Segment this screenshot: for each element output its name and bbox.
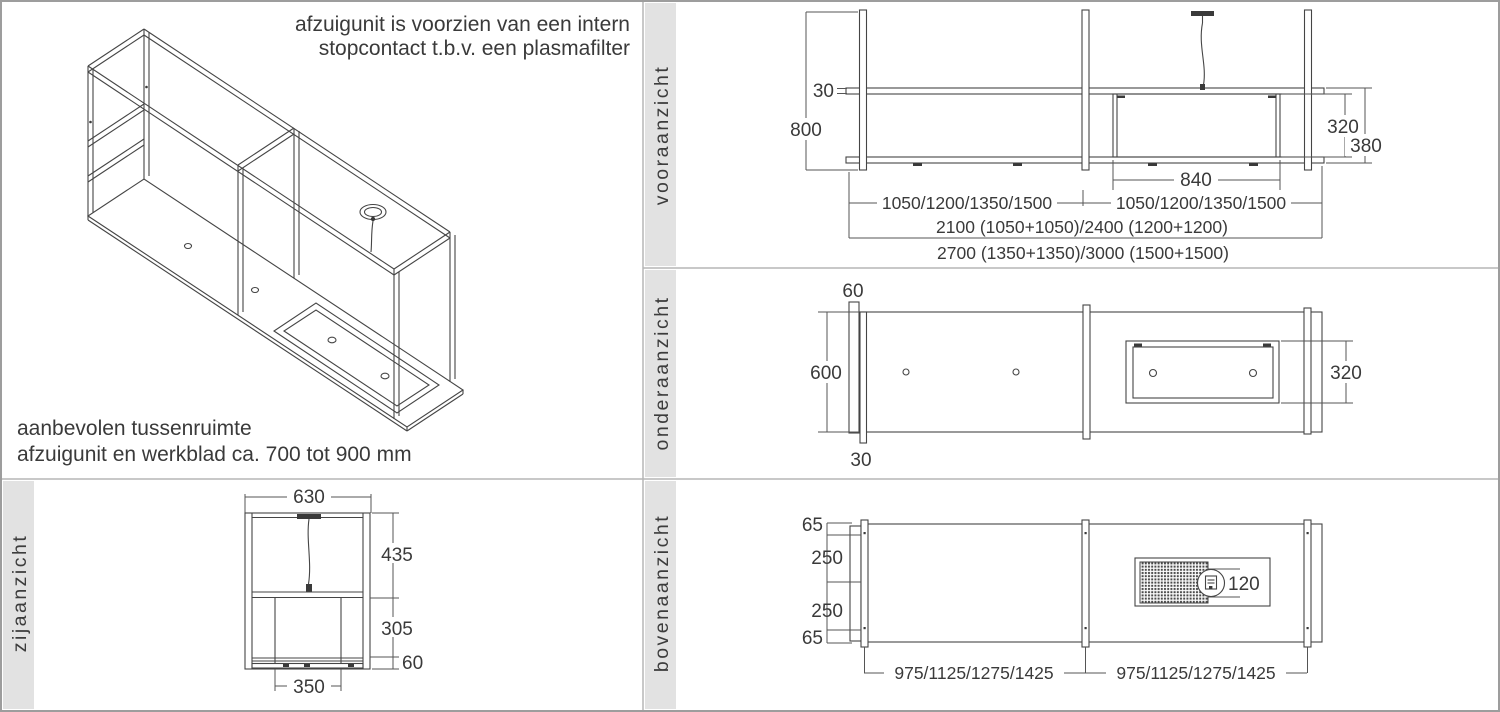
panel-dividers [2,2,1498,710]
iso-hint-line2: afzuigunit en werkblad ca. 700 tot 900 m… [17,443,412,466]
side-dim-350: 350 [293,677,325,698]
front-row2: 2100 (1050+1050)/2400 (1200+1200) [936,217,1228,237]
iso-note-line1: afzuigunit is voorzien van een intern [295,13,630,36]
top-row-left: 975/1125/1275/1425 [894,663,1053,683]
side-dim-305: 305 [381,619,413,640]
technical-drawing-sheet: vooraanzicht onderaanzicht bovenaanzicht… [0,0,1500,712]
label-bovenaanzicht: bovenaanzicht [651,514,673,672]
top-dim-65-bottom: 65 [802,628,823,649]
front-view: 30 800 840 320 380 1050/1200/1350/1500 1… [786,10,1387,263]
bottom-view: 60 30 600 320 [805,281,1367,471]
front-dim-30: 30 [813,81,834,102]
iso-hint-line1: aanbevolen tussenruimte [17,417,252,440]
label-vooraanzicht: vooraanzicht [651,65,673,206]
front-dim-380: 380 [1350,136,1382,157]
top-dim-120: 120 [1228,574,1260,595]
iso-note-line2: stopcontact t.b.v. een plasmafilter [319,37,630,60]
side-dim-630: 630 [293,487,325,508]
front-row1-left: 1050/1200/1350/1500 [882,193,1053,213]
under-dim-320: 320 [1330,363,1362,384]
under-dim-600: 600 [810,363,842,384]
top-dim-250-lower: 250 [811,601,843,622]
under-dim-30: 30 [850,450,871,471]
side-dim-435: 435 [381,545,413,566]
top-dim-250-upper: 250 [811,548,843,569]
top-row-right: 975/1125/1275/1425 [1116,663,1275,683]
isometric-view: afzuigunit is voorzien van een intern st… [17,13,630,466]
front-row3: 2700 (1350+1350)/3000 (1500+1500) [937,243,1229,263]
front-dim-840: 840 [1180,170,1212,191]
top-dim-65-top: 65 [802,515,823,536]
front-row1-right: 1050/1200/1350/1500 [1116,193,1287,213]
side-view: 630 435 305 60 [245,487,423,698]
side-dim-60: 60 [402,653,423,674]
under-dim-60: 60 [842,281,863,302]
front-dim-800: 800 [790,120,822,141]
label-onderaanzicht: onderaanzicht [651,295,673,450]
label-zijaanzicht: zijaanzicht [9,534,31,653]
top-view: 65 250 250 65 120 975/1125/1275/1425 975… [802,515,1322,683]
drawing-canvas: vooraanzicht onderaanzicht bovenaanzicht… [2,2,1498,710]
